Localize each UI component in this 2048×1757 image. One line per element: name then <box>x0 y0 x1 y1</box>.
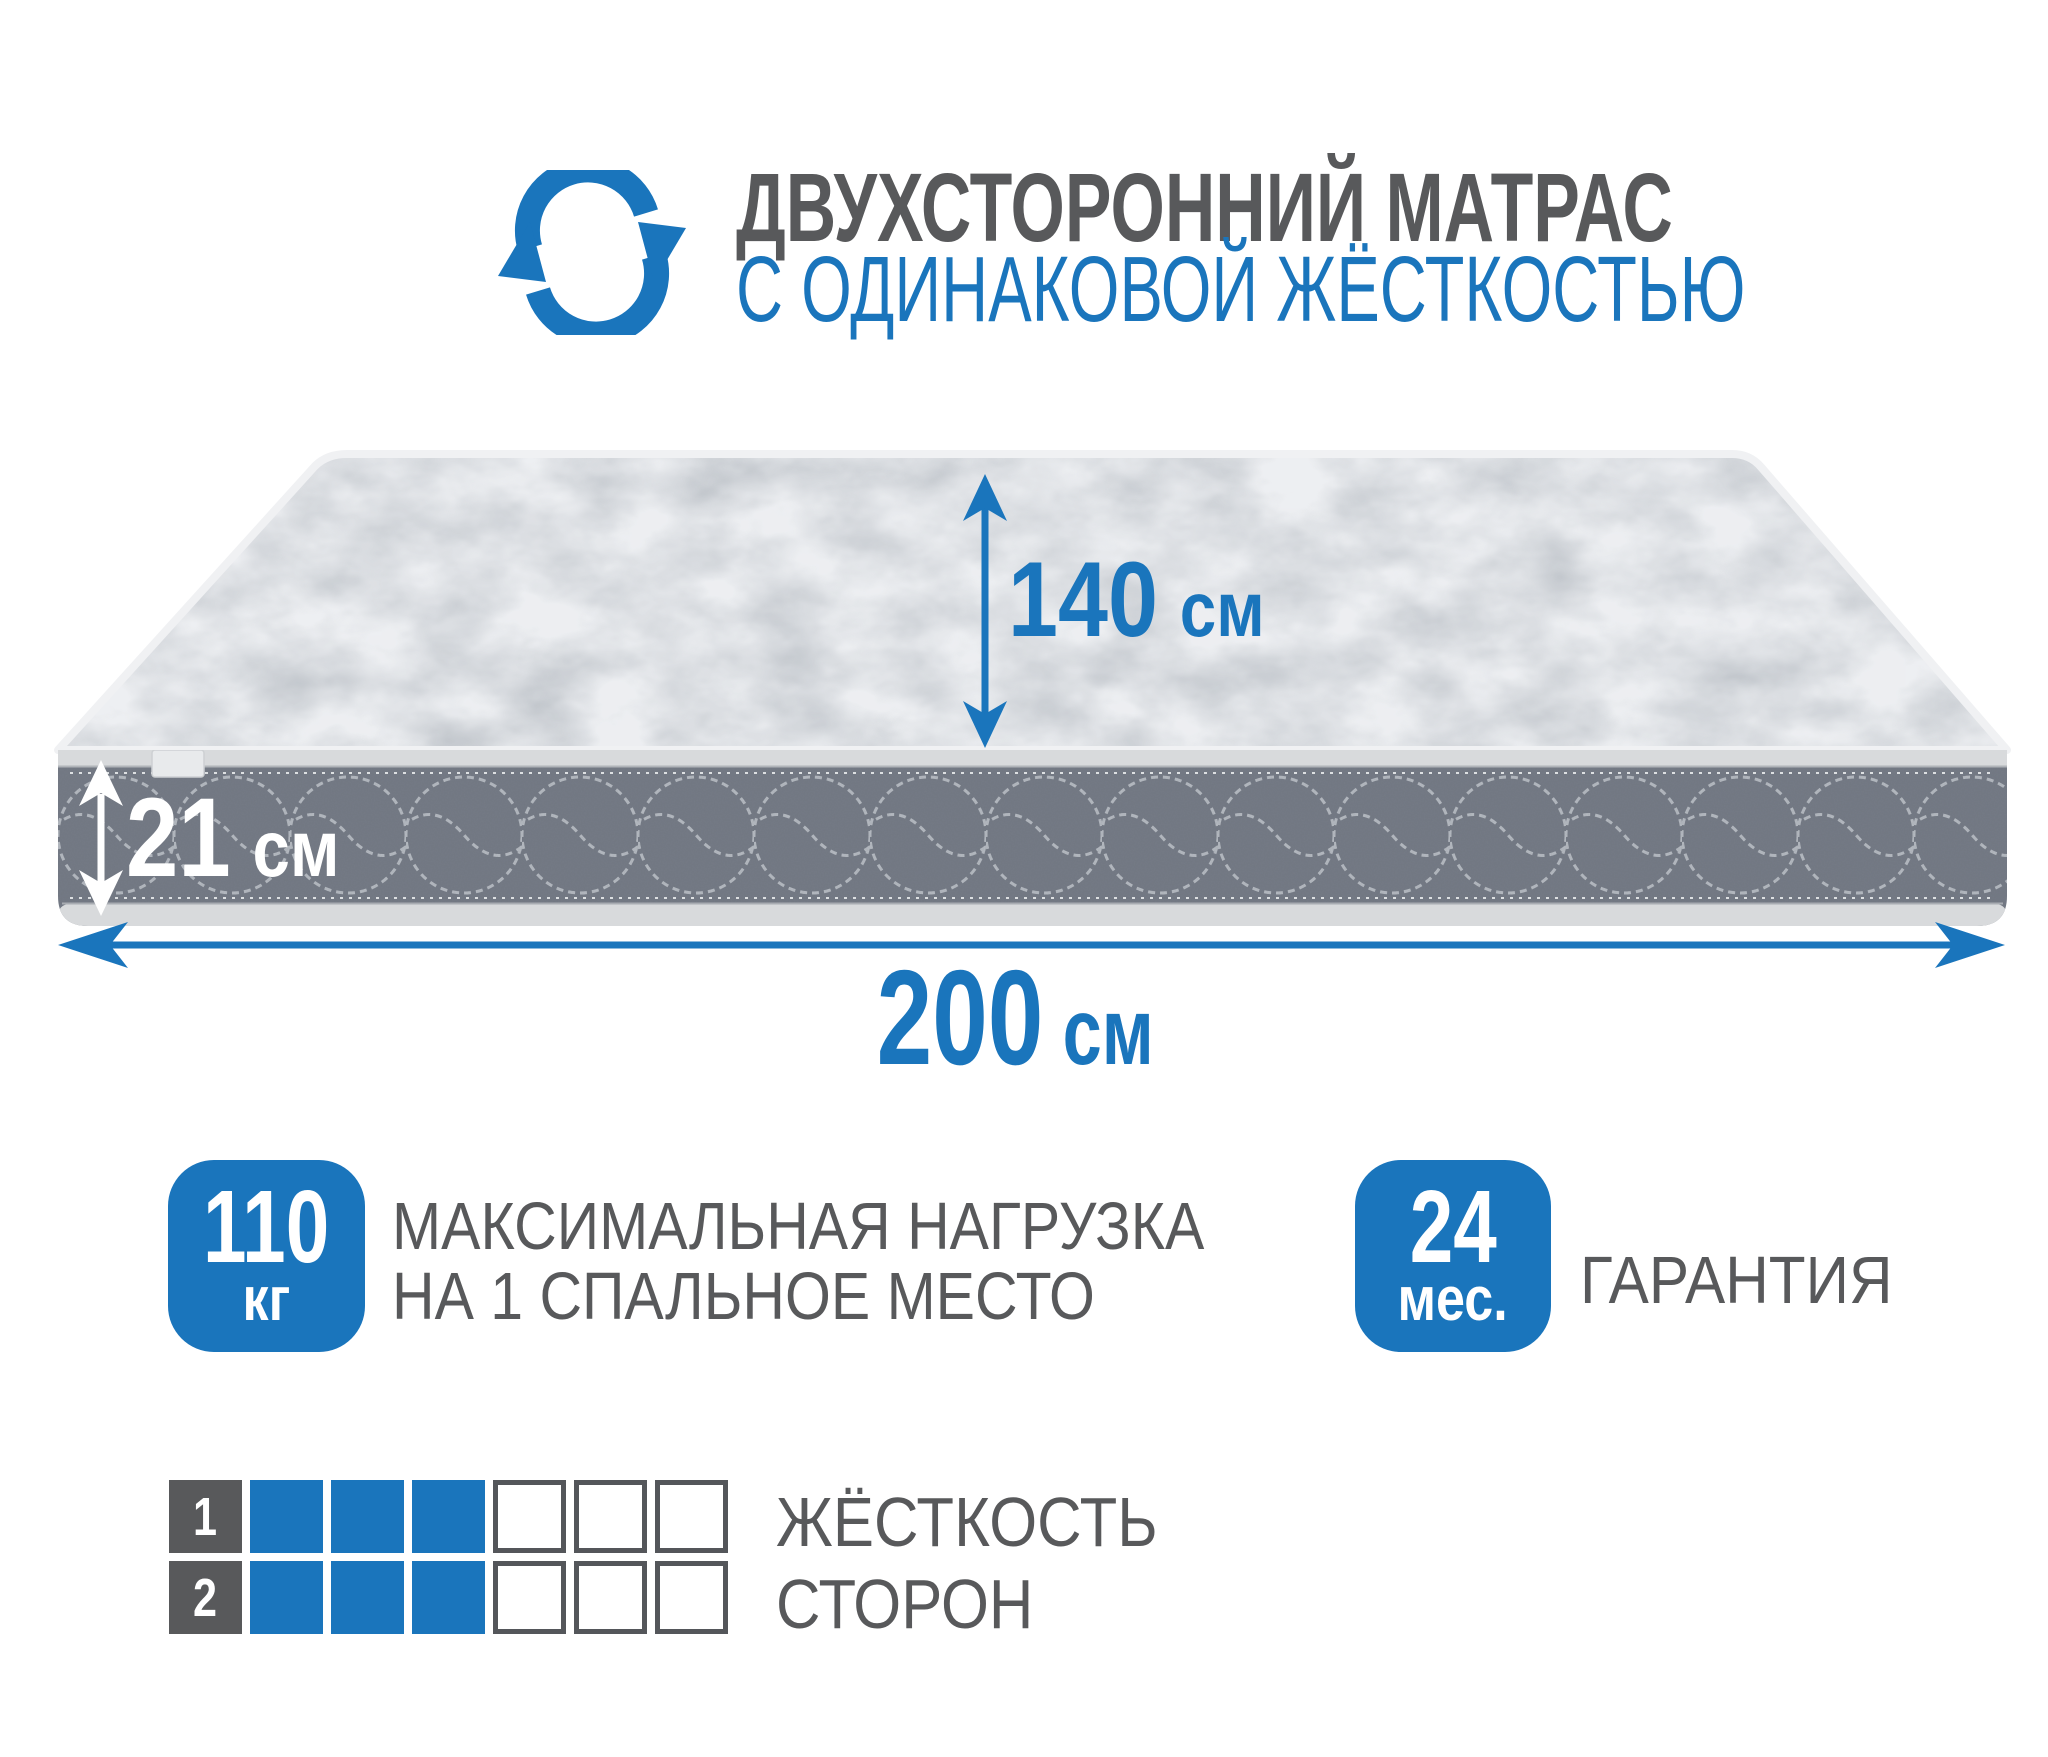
max-load-unit: кг <box>238 1271 295 1329</box>
band-bottom-piping <box>58 904 2007 926</box>
firmness-cell-empty <box>574 1561 647 1634</box>
firmness-cell-filled <box>412 1480 485 1553</box>
warranty-unit: мес. <box>1387 1271 1518 1329</box>
warranty-value: 24 <box>1396 1183 1511 1271</box>
width-dimension-label: 140см <box>1008 546 1314 663</box>
firmness-side-number: 1 <box>169 1480 242 1553</box>
height-dimension-label: 21см <box>126 782 380 905</box>
firmness-cell-filled <box>331 1561 404 1634</box>
firmness-scale: 12 <box>169 1480 728 1642</box>
firmness-caption: ЖЁСТКОСТЬ СТОРОН <box>776 1481 1210 1645</box>
band-top-piping <box>58 750 2007 766</box>
firmness-row: 2 <box>169 1561 728 1634</box>
mattress-label-tab <box>152 750 204 777</box>
max-load-caption: МАКСИМАЛЬНАЯ НАГРУЗКА НА 1 СПАЛЬНОЕ МЕСТ… <box>392 1192 1315 1332</box>
firmness-cell-filled <box>331 1480 404 1553</box>
firmness-row: 1 <box>169 1480 728 1553</box>
title-line2: С ОДИНАКОВОЙ ЖЁСТКОСТЬЮ <box>736 243 2048 336</box>
firmness-side-number: 2 <box>169 1561 242 1634</box>
firmness-cell-empty <box>655 1561 728 1634</box>
firmness-cell-empty <box>655 1480 728 1553</box>
warranty-caption: ГАРАНТИЯ <box>1580 1247 1927 1314</box>
rotate-arrows-icon <box>490 170 690 335</box>
max-load-value: 110 <box>183 1183 349 1271</box>
firmness-cell-empty <box>493 1480 566 1553</box>
firmness-cell-empty <box>574 1480 647 1553</box>
length-dimension-label: 200см <box>700 950 1330 1100</box>
firmness-cell-filled <box>412 1561 485 1634</box>
warranty-badge: 24 мес. <box>1355 1160 1551 1352</box>
firmness-cell-filled <box>250 1561 323 1634</box>
firmness-cell-filled <box>250 1480 323 1553</box>
mattress-infographic: ДВУХСТОРОННИЙ МАТРАС С ОДИНАКОВОЙ ЖЁСТКО… <box>0 0 2048 1757</box>
max-load-badge: 110 кг <box>168 1160 365 1352</box>
firmness-cell-empty <box>493 1561 566 1634</box>
